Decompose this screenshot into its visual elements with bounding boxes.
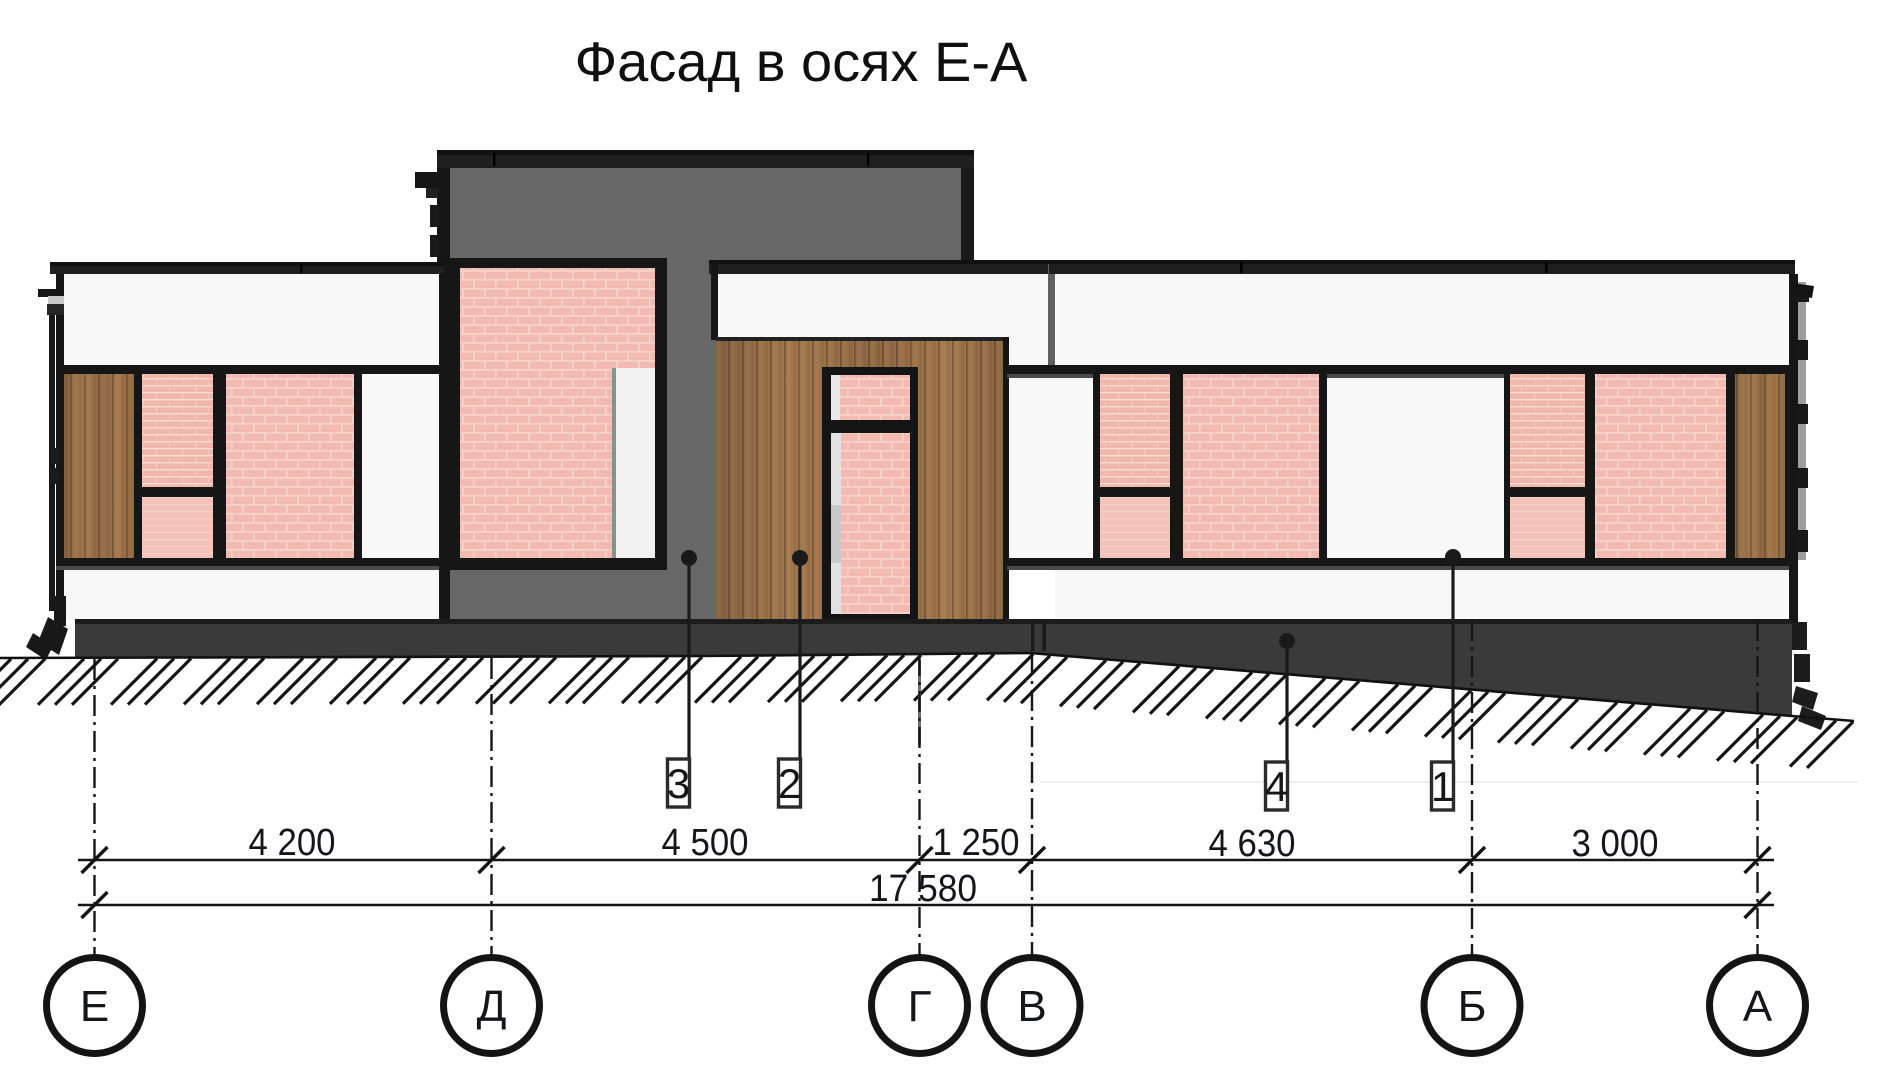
svg-text:А: А xyxy=(1743,982,1773,1031)
svg-text:Г: Г xyxy=(908,982,932,1031)
svg-text:4: 4 xyxy=(1265,763,1288,810)
svg-text:1 250: 1 250 xyxy=(933,822,1020,864)
svg-text:1: 1 xyxy=(1431,763,1454,810)
svg-text:2: 2 xyxy=(778,760,801,807)
svg-text:Б: Б xyxy=(1458,982,1487,1031)
svg-text:Е: Е xyxy=(80,982,109,1031)
svg-text:4 200: 4 200 xyxy=(249,822,336,864)
svg-text:4 630: 4 630 xyxy=(1209,823,1296,865)
svg-text:4 500: 4 500 xyxy=(662,822,749,864)
svg-text:3: 3 xyxy=(667,760,690,807)
svg-text:Фасад в осях Е-А: Фасад в осях Е-А xyxy=(575,30,1028,93)
svg-text:Д: Д xyxy=(477,982,507,1031)
svg-text:3 000: 3 000 xyxy=(1572,823,1659,865)
svg-text:В: В xyxy=(1017,982,1046,1031)
svg-text:17 580: 17 580 xyxy=(869,868,977,910)
